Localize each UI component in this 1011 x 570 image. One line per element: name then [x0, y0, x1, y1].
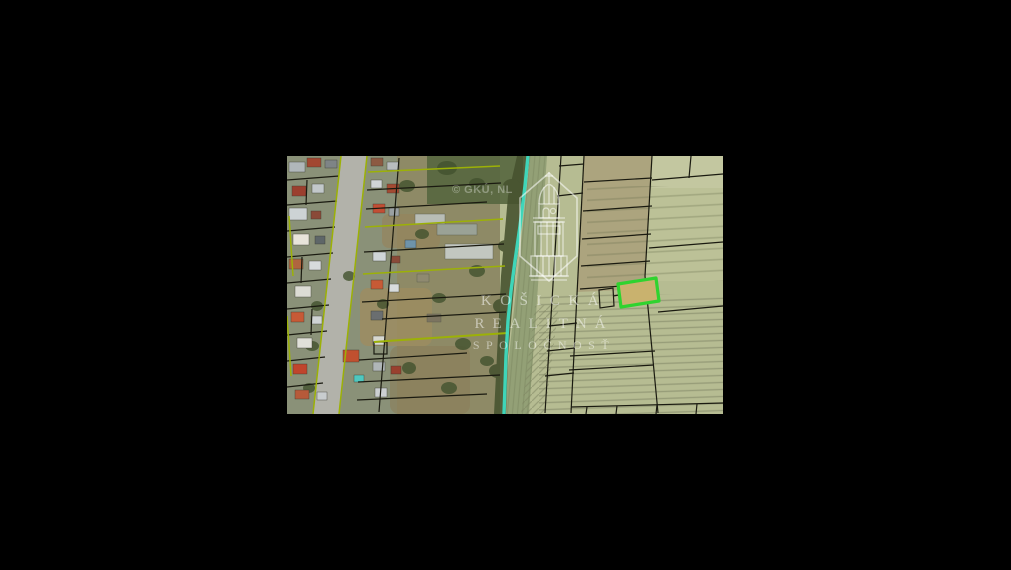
aerial-map-photo: KOŠICKÁ REALITNÁ SPOLOČNOSŤ © GKÚ, NL	[287, 156, 723, 414]
house-roof	[289, 259, 303, 269]
watermark-title-line3: SPOLOČNOSŤ	[473, 338, 615, 352]
tree	[415, 229, 429, 239]
field-block-top-right	[652, 156, 723, 188]
house-roof	[293, 234, 309, 245]
watermark-title-line1: KOŠICKÁ	[481, 292, 607, 309]
copyright-label: © GKÚ, NL	[452, 183, 513, 196]
aerial-map-svg: KOŠICKÁ REALITNÁ SPOLOČNOSŤ © GKÚ, NL	[287, 156, 723, 414]
house-roof	[371, 280, 383, 289]
house-roof	[387, 162, 399, 170]
house-roof	[295, 390, 309, 399]
plow-lines-texture	[539, 294, 723, 414]
house-roof	[311, 316, 322, 324]
tree	[455, 338, 471, 350]
house-roof	[289, 208, 307, 220]
highlighted-parcel	[618, 278, 659, 307]
house-roof	[292, 186, 306, 196]
house-roof	[315, 236, 325, 244]
house-roof	[391, 256, 400, 263]
house-roof	[389, 284, 399, 292]
tree	[441, 382, 457, 394]
house-roof	[312, 184, 324, 193]
field-texture	[587, 186, 723, 281]
house-roof	[373, 252, 386, 261]
house-roof	[309, 261, 321, 270]
house-roof	[307, 158, 321, 167]
house-roof	[371, 311, 383, 320]
house-roof	[311, 211, 321, 219]
house-roof	[371, 180, 382, 188]
house-roof	[405, 240, 416, 248]
house-roof	[295, 286, 311, 297]
house-roof	[291, 312, 304, 322]
tree	[399, 180, 415, 192]
house-roof	[371, 158, 383, 166]
tree	[402, 362, 416, 374]
greenhouse	[437, 224, 477, 235]
house-roof	[317, 392, 327, 400]
house-roof	[325, 160, 337, 168]
shed	[417, 274, 429, 282]
house-roof	[293, 364, 307, 374]
house-roof	[289, 162, 305, 172]
house-roof	[391, 366, 401, 374]
tree	[480, 356, 494, 366]
swimming-pool	[354, 375, 364, 382]
watermark-title-line2: REALITNÁ	[475, 315, 614, 332]
house-roof	[297, 338, 312, 348]
letterbox-background: { "frame": { "background": "#000000" }, …	[0, 0, 1011, 570]
